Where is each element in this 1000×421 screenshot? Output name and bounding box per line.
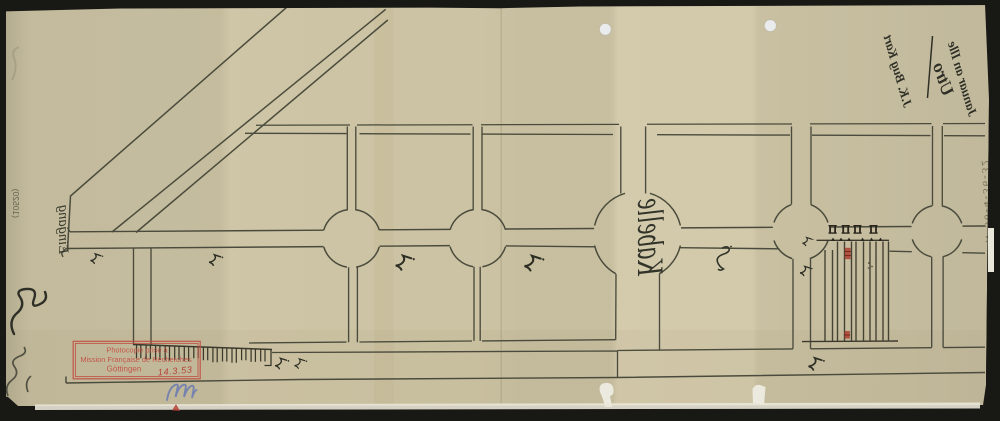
svg-text:(10520): (10520): [11, 189, 21, 218]
svg-text:Eingang: Eingang: [55, 205, 71, 255]
svg-text:Göttingen: Göttingen: [107, 365, 142, 374]
svg-text:Photocopie prise à: Photocopie prise à: [106, 345, 168, 354]
svg-text:Mission Française de Recherche: Mission Française de Recherches: [80, 355, 192, 364]
svg-text:Kabelle: Kabelle: [630, 198, 671, 277]
